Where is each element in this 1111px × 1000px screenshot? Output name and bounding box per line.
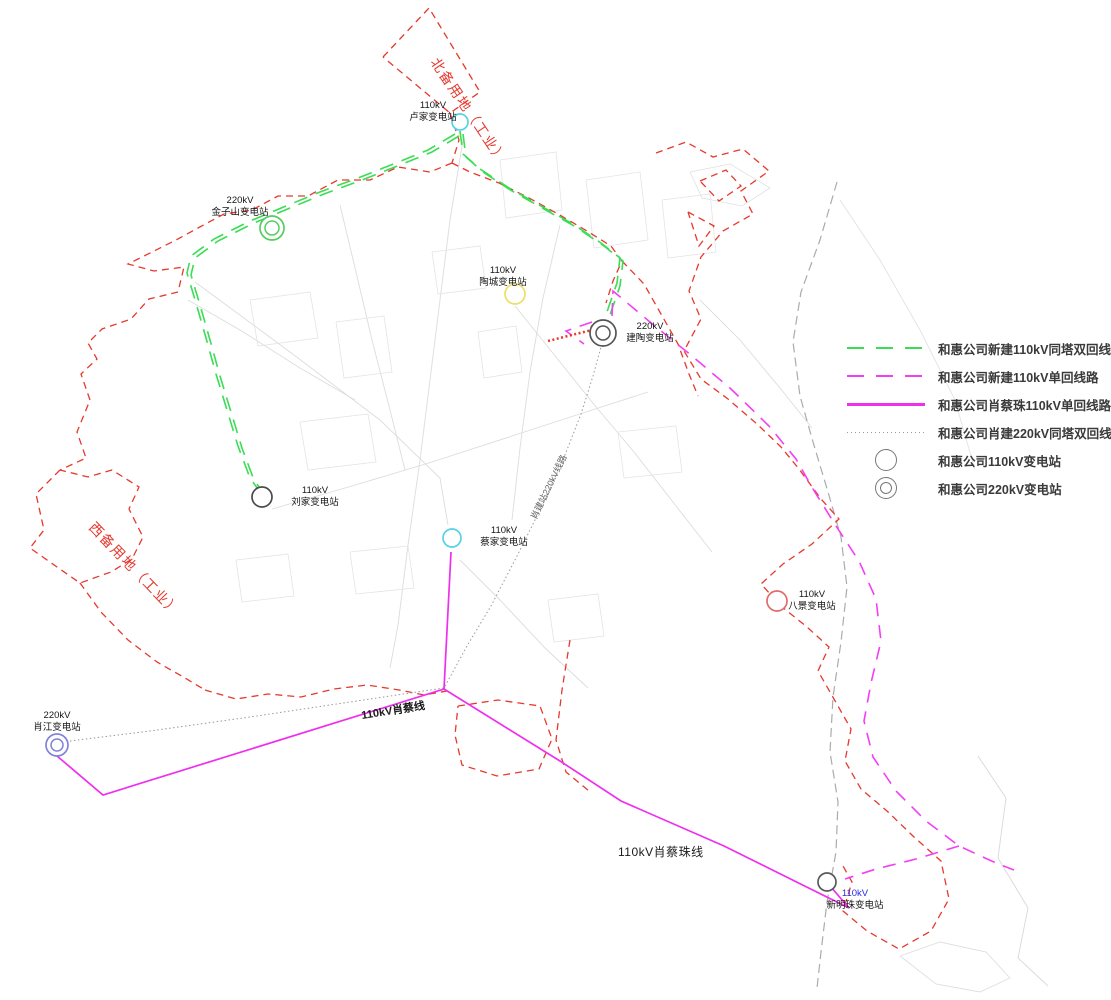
planning-boundary-south xyxy=(205,685,447,699)
legend-item-220kv-substation: 和惠公司220kV变电站 xyxy=(846,474,1108,502)
background-path xyxy=(900,942,1010,992)
legend-label: 和惠公司110kV变电站 xyxy=(938,451,1061,470)
background-path xyxy=(250,292,318,346)
legend-label: 和惠公司肖建220kV同塔双回线路 xyxy=(938,423,1111,442)
planning-boundary-south-parcel xyxy=(455,700,552,776)
liujia-station-marker xyxy=(252,487,272,507)
liujia-station-label: 110kV刘家变电站 xyxy=(291,485,339,508)
gray-dotted-line-swatch xyxy=(846,432,926,433)
background-path xyxy=(515,306,712,552)
caijia-station-label: 110kV蔡家变电站 xyxy=(480,525,528,548)
legend-item-xiaojian-220kv: 和惠公司肖建220kV同塔双回线路 xyxy=(846,418,1108,446)
xiaocaizhu-110kv-line-west xyxy=(57,552,451,795)
legend-label: 和惠公司220kV变电站 xyxy=(938,479,1062,498)
legend-item-xiaocaizhu-110kv: 和惠公司肖蔡珠110kV单回线路 xyxy=(846,390,1108,418)
green-dashed-line-swatch xyxy=(846,347,926,349)
background-path xyxy=(690,164,770,206)
reserve-area-label: 西备用地（工业） xyxy=(86,519,184,619)
legend: 和惠公司新建110kV同塔双回线路 和惠公司新建110kV单回线路 和惠公司肖蔡… xyxy=(846,334,1108,502)
caijia-station-marker xyxy=(443,529,461,547)
lujia-station-label: 110kV卢家变电站 xyxy=(409,100,457,123)
xinmingzhu-station-marker xyxy=(818,873,836,891)
rail-boundary-line xyxy=(793,182,847,988)
background-path xyxy=(460,560,588,688)
legend-item-new-110kv-double: 和惠公司新建110kV同塔双回线路 xyxy=(846,334,1108,362)
legend-item-new-110kv-single: 和惠公司新建110kV单回线路 xyxy=(846,362,1108,390)
magenta-dashed-line-swatch xyxy=(846,375,926,377)
new-110kv-single-line-branch xyxy=(845,846,959,879)
background-path xyxy=(478,326,522,378)
background-path xyxy=(548,594,604,642)
new-110kv-double-line-west xyxy=(187,134,455,492)
jiantao-station-marker xyxy=(590,320,616,346)
taocheng-station-label: 110kV陶城变电站 xyxy=(479,265,527,288)
background-path xyxy=(978,756,1048,986)
background-path xyxy=(300,414,376,470)
xiaocaizhu-110kv-line-east xyxy=(444,689,849,908)
planning-boundary-top xyxy=(452,163,622,303)
bajing-station-label: 110kV八景变电站 xyxy=(788,589,836,612)
planning-boundary-southwest xyxy=(80,583,205,690)
background-path xyxy=(236,554,294,602)
substation-110kv-circle-icon xyxy=(846,449,926,471)
background-path xyxy=(700,300,812,428)
background-path xyxy=(188,300,355,400)
power-line-label: 110kV肖蔡珠线 xyxy=(618,845,704,859)
construction-tick-line xyxy=(548,330,592,341)
legend-label: 和惠公司肖蔡珠110kV单回线路 xyxy=(938,395,1111,414)
xiaojiang-station-label: 220kV肖江变电站 xyxy=(33,710,81,733)
background-path xyxy=(390,140,463,668)
jinzishan-station-label: 220kV金子山变电站 xyxy=(211,195,269,218)
substation-220kv-circle-icon xyxy=(846,477,926,499)
background-path xyxy=(350,546,414,594)
background-path xyxy=(272,392,648,509)
power-line-label: 肖建站220kV线路 xyxy=(528,453,569,521)
background-path xyxy=(336,316,392,378)
planning-boundary-east xyxy=(656,142,949,949)
bajing-station-marker xyxy=(767,591,787,611)
xiaojiang-station-marker xyxy=(46,734,68,756)
background-path xyxy=(500,152,562,218)
power-line-label: 110kV肖蔡线 xyxy=(360,698,426,722)
new-110kv-double-line-east xyxy=(463,134,623,324)
planning-boundary-east-detail-1 xyxy=(700,170,741,201)
background-path xyxy=(618,426,682,478)
legend-label: 和惠公司新建110kV同塔双回线路 xyxy=(938,339,1111,358)
magenta-solid-line-swatch xyxy=(846,403,926,406)
jinzishan-station-marker xyxy=(260,216,284,240)
background-path xyxy=(432,246,486,294)
legend-label: 和惠公司新建110kV单回线路 xyxy=(938,367,1098,386)
planning-boundary-east-detail-2 xyxy=(688,212,714,246)
background-path xyxy=(340,205,405,470)
new-110kv-double-line-east xyxy=(460,131,620,321)
legend-item-110kv-substation: 和惠公司110kV变电站 xyxy=(846,446,1108,474)
